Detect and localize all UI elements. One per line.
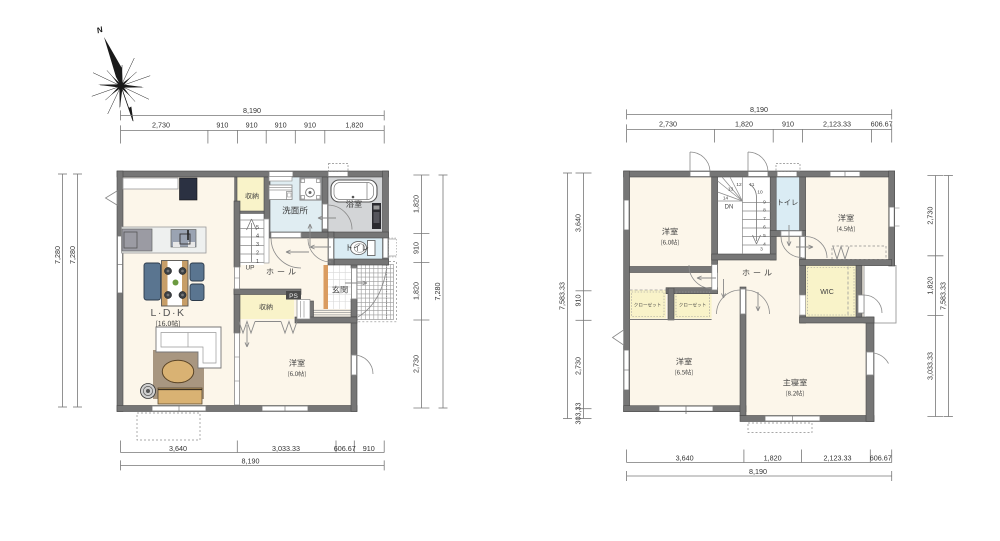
svg-text:8,190: 8,190 xyxy=(750,105,768,114)
svg-text:1,820: 1,820 xyxy=(926,277,935,295)
svg-text:910: 910 xyxy=(216,121,228,130)
svg-text:910: 910 xyxy=(275,121,287,130)
svg-text:2,123.33: 2,123.33 xyxy=(823,120,851,129)
svg-text:3,033.33: 3,033.33 xyxy=(926,352,935,380)
svg-text:1: 1 xyxy=(256,259,259,265)
svg-text:7,280: 7,280 xyxy=(53,246,62,264)
svg-text:8,190: 8,190 xyxy=(749,467,767,476)
svg-text:13: 13 xyxy=(728,187,734,193)
svg-text:7,280: 7,280 xyxy=(433,283,442,301)
svg-text:910: 910 xyxy=(304,121,316,130)
svg-text:14: 14 xyxy=(723,196,729,202)
svg-text:9: 9 xyxy=(763,200,766,206)
svg-text:8: 8 xyxy=(763,208,766,214)
svg-text:606.67: 606.67 xyxy=(334,444,356,453)
svg-text:910: 910 xyxy=(782,120,794,129)
svg-text:3,033.33: 3,033.33 xyxy=(272,444,300,453)
svg-text:2,730: 2,730 xyxy=(152,121,170,130)
svg-text:12: 12 xyxy=(736,182,742,188)
svg-text:7,583.33: 7,583.33 xyxy=(558,282,567,310)
svg-text:303,33: 303,33 xyxy=(574,403,583,425)
svg-text:910: 910 xyxy=(412,242,421,254)
svg-text:1,820: 1,820 xyxy=(412,282,421,300)
svg-text:3,640: 3,640 xyxy=(676,453,694,462)
svg-text:5: 5 xyxy=(763,233,766,239)
svg-text:WIC: WIC xyxy=(820,289,834,296)
svg-text:7,583.33: 7,583.33 xyxy=(939,282,948,310)
svg-text:8,190: 8,190 xyxy=(243,106,261,115)
svg-text:3: 3 xyxy=(760,247,763,253)
svg-text:10: 10 xyxy=(757,190,763,196)
svg-text:910: 910 xyxy=(574,295,583,307)
svg-text:3: 3 xyxy=(256,242,259,248)
svg-text:6: 6 xyxy=(763,225,766,231)
svg-text:910: 910 xyxy=(363,444,375,453)
svg-text:1,820: 1,820 xyxy=(345,121,363,130)
svg-text:8,190: 8,190 xyxy=(242,457,260,466)
svg-text:7: 7 xyxy=(763,216,766,222)
svg-text:4: 4 xyxy=(763,242,766,248)
svg-text:2,123.33: 2,123.33 xyxy=(824,453,852,462)
svg-text:910: 910 xyxy=(246,121,258,130)
svg-text:606.67: 606.67 xyxy=(870,453,892,462)
svg-text:1,820: 1,820 xyxy=(735,120,753,129)
svg-text:5: 5 xyxy=(256,225,259,231)
svg-text:7,280: 7,280 xyxy=(68,246,77,264)
svg-text:2,730: 2,730 xyxy=(926,207,935,225)
svg-text:L·D·K: L·D·K xyxy=(151,307,186,319)
svg-text:4: 4 xyxy=(256,234,259,240)
svg-text:2: 2 xyxy=(256,251,259,257)
svg-text:1,820: 1,820 xyxy=(412,195,421,213)
svg-text:1,820: 1,820 xyxy=(764,453,782,462)
svg-text:DN: DN xyxy=(725,205,734,211)
svg-text:3,640: 3,640 xyxy=(574,214,583,232)
svg-text:PS: PS xyxy=(289,293,298,300)
svg-text:2,730: 2,730 xyxy=(412,355,421,373)
svg-text:3,640: 3,640 xyxy=(169,444,187,453)
svg-text:606.67: 606.67 xyxy=(871,120,893,129)
svg-text:2,730: 2,730 xyxy=(574,357,583,375)
svg-text:UP: UP xyxy=(245,265,254,272)
svg-text:2,730: 2,730 xyxy=(659,120,677,129)
